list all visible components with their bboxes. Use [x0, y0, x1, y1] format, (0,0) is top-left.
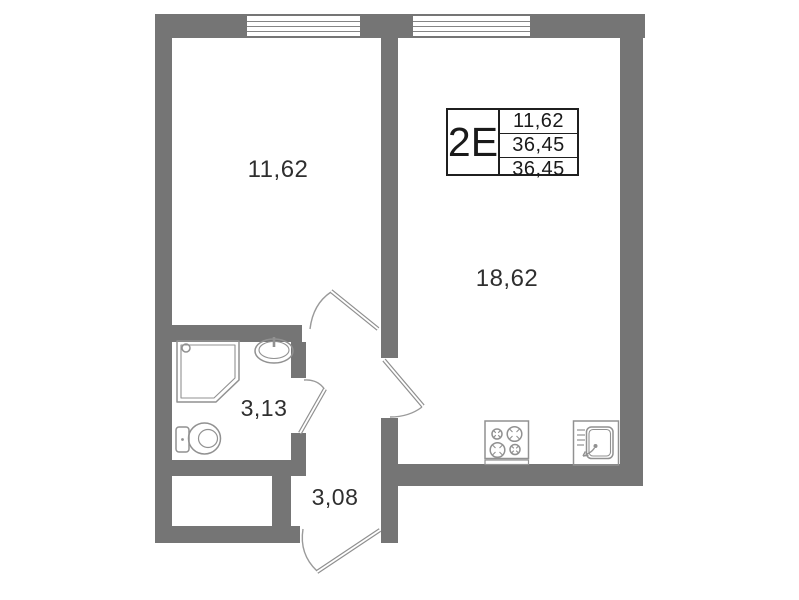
window-pane-line — [413, 31, 530, 32]
wall-bedroom-bottom — [155, 325, 302, 342]
unit-info-table: 2Е 11,62 36,45 36,45 — [446, 108, 579, 176]
wall-hall-bottom — [155, 526, 300, 543]
unit-type-cell: 2Е — [448, 110, 500, 174]
door-swing-icon — [310, 291, 378, 329]
wall-central-upper — [381, 14, 398, 358]
window-pane-line — [247, 26, 360, 27]
unit-area-row: 36,45 — [500, 158, 577, 181]
door-swing-icon — [384, 360, 423, 417]
wall-kitchen-bottom — [398, 464, 643, 486]
window-pane-line — [413, 26, 530, 27]
floor-plan: 11,62 18,62 3,13 3,08 2Е 11,62 36,45 36,… — [0, 0, 799, 600]
unit-area-rows: 11,62 36,45 36,45 — [500, 110, 577, 174]
wall-bathroom-bottom — [155, 460, 306, 476]
fixtures-layer — [0, 0, 799, 600]
bedroom-area-label: 11,62 — [223, 156, 333, 184]
wall-central-lower — [381, 418, 398, 543]
stove-icon — [485, 421, 529, 465]
window-pane-line — [247, 21, 360, 22]
living-kitchen-area-label: 18,62 — [452, 265, 562, 293]
toilet-icon — [176, 423, 221, 454]
window-icon — [413, 14, 530, 38]
bathroom-area-label: 3,13 — [209, 395, 319, 422]
window-pane-line — [413, 21, 530, 22]
unit-area-row: 36,45 — [500, 134, 577, 158]
window-pane-line — [247, 31, 360, 32]
unit-area-row: 11,62 — [500, 110, 577, 134]
kitchen-sink-icon — [574, 421, 619, 465]
wall-bathroom-right-upper — [291, 342, 306, 378]
wall-right — [620, 14, 643, 486]
door-swing-icon — [302, 529, 380, 572]
window-icon — [247, 14, 360, 38]
shower-icon — [177, 341, 239, 402]
hallway-area-label: 3,08 — [280, 484, 390, 511]
